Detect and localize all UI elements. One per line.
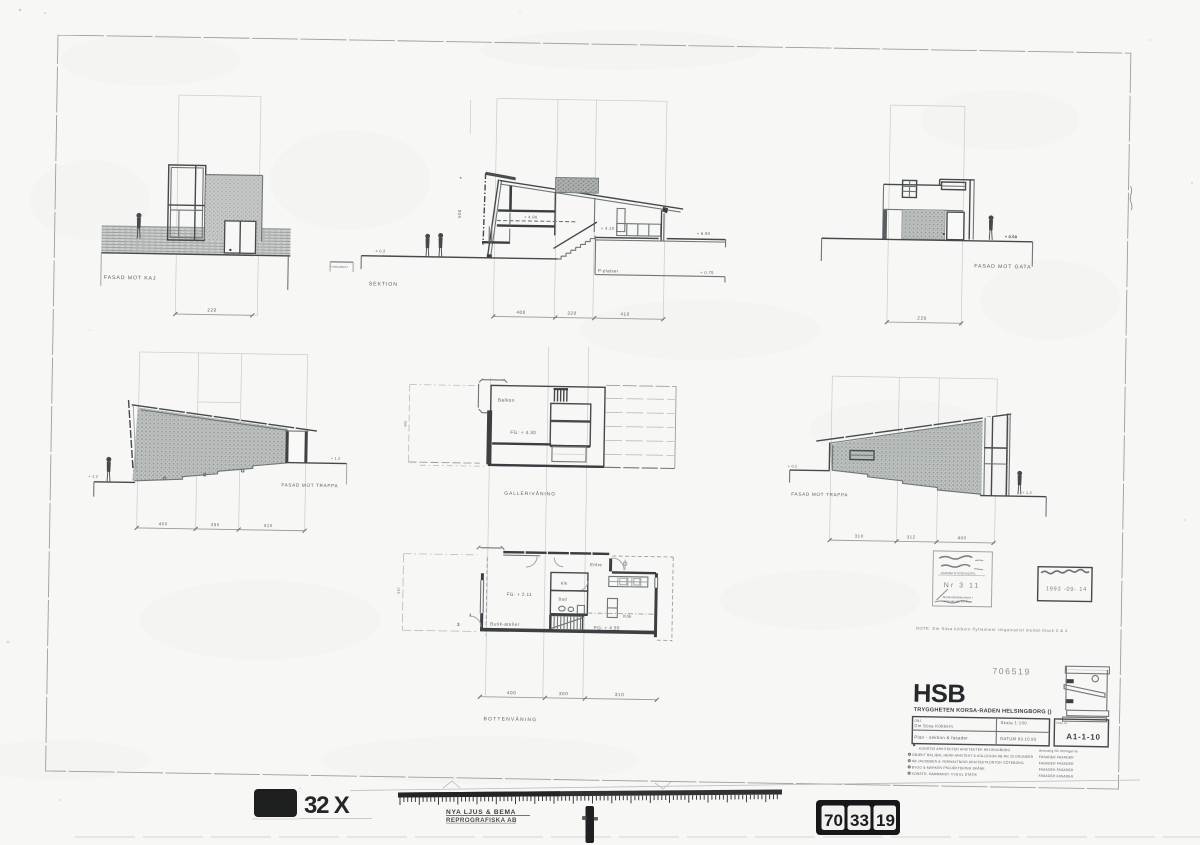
svg-text:400: 400 — [159, 521, 168, 526]
svg-text:+ 0.2: + 0.2 — [375, 248, 386, 253]
svg-text:220: 220 — [917, 316, 927, 321]
svg-text:Nr 3 11: Nr 3 11 — [944, 582, 981, 590]
svg-text:A1-1-10: A1-1-10 — [1066, 732, 1101, 742]
svg-text:+ 0.75: + 0.75 — [700, 270, 714, 275]
svg-text:FASADER FASADER: FASADER FASADER — [1039, 768, 1074, 773]
svg-text:HSB: HSB — [913, 680, 966, 709]
svg-text:32 X: 32 X — [304, 792, 350, 819]
svg-text:300: 300 — [559, 691, 569, 696]
svg-text:+ 4.10: + 4.10 — [601, 226, 615, 231]
svg-text:1993 -09- 14: 1993 -09- 14 — [1046, 586, 1087, 593]
svg-text:19: 19 — [876, 811, 895, 830]
svg-text:706519: 706519 — [992, 666, 1031, 677]
svg-text:Ritn nr: Ritn nr — [1056, 721, 1068, 725]
svg-text:+ 0.2: + 0.2 — [788, 464, 798, 468]
svg-text:FASAD MOT TRAPPA: FASAD MOT TRAPPA — [281, 482, 338, 488]
svg-text:ANKOM BYGGNADSN.: ANKOM BYGGNADSN. — [941, 571, 976, 576]
svg-text:400: 400 — [958, 535, 967, 540]
svg-text:Bad: Bad — [558, 597, 567, 602]
svg-text:Butik-atelier: Butik-atelier — [490, 621, 520, 626]
svg-text:220: 220 — [207, 308, 217, 313]
svg-text:Klk: Klk — [561, 581, 568, 586]
svg-text:FASAD MOT KAJ: FASAD MOT KAJ — [104, 275, 157, 282]
svg-text:310: 310 — [264, 523, 273, 528]
svg-text:Ansvarig för ritningarna: Ansvarig för ritningarna — [1039, 749, 1078, 754]
svg-text:Balkon: Balkon — [498, 397, 515, 402]
svg-text:DATUM 93.10.93: DATUM 93.10.93 — [1000, 736, 1037, 742]
svg-text:FASADER FASADER: FASADER FASADER — [1039, 761, 1074, 766]
svg-text:390: 390 — [211, 522, 220, 527]
svg-text:OBJ.: OBJ. — [914, 719, 922, 723]
svg-text:FASAD MOT TRAPPA: FASAD MOT TRAPPA — [791, 491, 848, 497]
svg-text:312: 312 — [907, 534, 916, 539]
svg-text:400: 400 — [516, 310, 526, 315]
svg-text:+ 0.50: + 0.50 — [1005, 234, 1018, 239]
svg-text:Kök: Kök — [623, 614, 632, 619]
svg-text:33: 33 — [850, 811, 869, 830]
svg-text:+ 1.2: + 1.2 — [331, 457, 341, 461]
svg-text:+ 4.90: + 4.90 — [524, 214, 538, 219]
svg-text:Helsingborgs kommun: Helsingborgs kommun — [943, 599, 973, 604]
svg-text:Plan - sektion & fasader: Plan - sektion & fasader — [914, 735, 968, 741]
svg-text:320: 320 — [567, 311, 577, 316]
svg-text:Skala 1:100: Skala 1:100 — [1000, 720, 1027, 725]
svg-text:Die Süsa Köbbern: Die Süsa Köbbern — [914, 723, 953, 729]
svg-text:FG: + 4.55: FG: + 4.55 — [594, 625, 620, 630]
svg-text:FUNDAMENT: FUNDAMENT — [330, 265, 348, 269]
svg-text:400: 400 — [507, 690, 517, 695]
svg-text:400: 400 — [403, 420, 407, 427]
svg-text:FG: + 4.30: FG: + 4.30 — [510, 430, 536, 435]
svg-text:Entre: Entre — [590, 562, 602, 567]
svg-text:310: 310 — [855, 534, 864, 539]
svg-text:600: 600 — [457, 209, 462, 218]
svg-text:P-platser: P-platser — [598, 268, 619, 273]
svg-text:+ 1.2: + 1.2 — [1022, 491, 1032, 495]
svg-text:+ 1.2: + 1.2 — [88, 475, 98, 479]
svg-text:FG: + 2.11: FG: + 2.11 — [507, 592, 533, 597]
svg-text:SEKTION: SEKTION — [369, 281, 398, 287]
svg-text:70: 70 — [824, 811, 843, 830]
svg-text:FASADER FASADER: FASADER FASADER — [1039, 774, 1074, 779]
svg-text:BOTTENVÅNING: BOTTENVÅNING — [483, 715, 537, 723]
svg-text:+ 6.90: + 6.90 — [697, 231, 711, 236]
svg-text:310: 310 — [615, 692, 625, 697]
svg-text:FASADER FASADER: FASADER FASADER — [1039, 755, 1074, 760]
svg-text:310: 310 — [397, 587, 401, 594]
